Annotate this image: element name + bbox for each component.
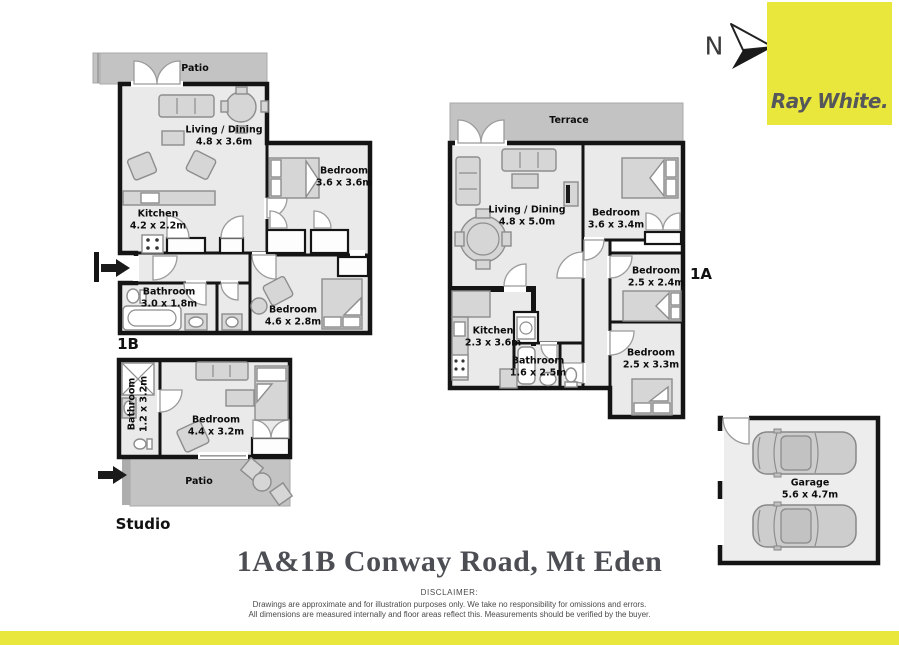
sofa [456, 157, 480, 205]
room-name: Patio [181, 63, 208, 74]
room-dims: 4.8 x 3.6m [185, 137, 262, 149]
kitchen-sink [141, 193, 159, 203]
room-name: Living / Dining [185, 125, 262, 137]
kitchen-counter [452, 291, 490, 317]
room-dims: 2.3 x 3.6m [465, 338, 521, 350]
closet-studio [252, 438, 289, 455]
room-name: Bathroom [141, 287, 197, 299]
closet-bedroom1b-1b [311, 230, 348, 253]
room-dims: 1.6 x 2.5m [510, 368, 566, 380]
unit-label-1a: 1A [690, 265, 712, 283]
room-dims: 2.5 x 2.4m [628, 278, 684, 290]
closet-bedroom1-1a [645, 232, 681, 244]
room-dims: 3.0 x 1.8m [141, 299, 197, 311]
room-name: Bedroom [316, 166, 372, 178]
patio-label-1b: Patio [181, 63, 208, 75]
bathroom-label-1a: Bathroom 1.6 x 2.5m [510, 356, 566, 381]
bathroom-label-1b: Bathroom 3.0 x 1.8m [141, 287, 197, 312]
car [753, 429, 856, 477]
unit-label-studio: Studio [116, 515, 171, 533]
patio-label-studio: Patio [185, 476, 212, 488]
ray-white-logo-text: Ray White. [767, 89, 892, 113]
disclaimer: DISCLAIMER: Drawings are approximate and… [0, 588, 899, 620]
room-dims: 2.5 x 3.3m [623, 360, 679, 372]
toilet [566, 368, 577, 382]
dining-table [226, 92, 256, 122]
living-label-1b: Living / Dining 4.8 x 3.6m [185, 125, 262, 150]
bathroom-label-studio: Bathroom 1.2 x 3.2m [127, 376, 152, 432]
sofa [159, 95, 214, 117]
room-name: Bathroom [510, 356, 566, 368]
closet-bedroom2-1b [338, 257, 368, 276]
floor-plan-page: Patio Living / Dining 4.8 x 3.6m Bedroom… [0, 0, 899, 645]
room-dims: 3.6 x 3.6m [316, 178, 372, 190]
room-dims: 3.6 x 3.4m [588, 220, 644, 232]
disclaimer-line1: Drawings are approximate and for illustr… [0, 600, 899, 610]
room-name: Bedroom [623, 348, 679, 360]
toilet [134, 439, 146, 449]
room-dims: 4.2 x 2.2m [130, 221, 186, 233]
disclaimer-heading: DISCLAIMER: [0, 588, 899, 598]
closet-bedroom1-1b [267, 230, 305, 253]
coffee-table [162, 131, 184, 145]
room-dims: 4.6 x 2.8m [265, 317, 321, 329]
bedroom1-label-1a: Bedroom 3.6 x 3.4m [588, 208, 644, 233]
room-name: Garage [782, 478, 838, 490]
kitchen-counter [123, 191, 215, 205]
room-name: Living / Dining [488, 205, 565, 217]
entry-arrow-1b [101, 259, 130, 277]
room-hall-1a [583, 240, 610, 388]
sofa [196, 362, 248, 380]
room-name: Bedroom [188, 415, 244, 427]
toilet [127, 289, 139, 303]
room-name: Patio [185, 476, 212, 487]
room-dims: 1.2 x 3.2m [139, 376, 151, 432]
kitchen-label-1b: Kitchen 4.2 x 2.2m [130, 209, 186, 234]
room-dims: 4.4 x 3.2m [188, 427, 244, 439]
north-label: N [705, 32, 724, 61]
bedroom3-label-1a: Bedroom 2.5 x 3.3m [623, 348, 679, 373]
room-name: Bedroom [265, 305, 321, 317]
brand-bottom-bar [0, 631, 899, 645]
room-name: Kitchen [465, 326, 521, 338]
patio-table [253, 473, 271, 491]
garage-label: Garage 5.6 x 4.7m [782, 478, 838, 503]
terrace-label-1a: Terrace [549, 115, 589, 127]
bedroom2-label-1a: Bedroom 2.5 x 2.4m [628, 266, 684, 291]
unit-1b-plan [93, 53, 370, 333]
stove [452, 355, 468, 377]
coffee-table [512, 174, 538, 188]
room-dims: 5.6 x 4.7m [782, 490, 838, 502]
unit-label-1b: 1B [117, 335, 139, 353]
car [753, 502, 856, 550]
sofa [502, 149, 556, 171]
bedroom1-label-1b: Bedroom 3.6 x 3.6m [316, 166, 372, 191]
room-name: Bedroom [588, 208, 644, 220]
room-name: Terrace [549, 115, 589, 126]
living-label-1a: Living / Dining 4.8 x 5.0m [488, 205, 565, 230]
room-dims: 4.8 x 5.0m [488, 217, 565, 229]
bedroom-label-studio: Bedroom 4.4 x 3.2m [188, 415, 244, 440]
disclaimer-line2: All dimensions are measured internally a… [0, 610, 899, 620]
bedroom2-label-1b: Bedroom 4.6 x 2.8m [265, 305, 321, 330]
room-name: Kitchen [130, 209, 186, 221]
kitchen-sink [454, 322, 465, 336]
page-title: 1A&1B Conway Road, Mt Eden [0, 545, 899, 579]
coffee-table [226, 390, 254, 406]
ray-white-logo: Ray White. [767, 2, 892, 125]
kitchen-label-1a: Kitchen 2.3 x 3.6m [465, 326, 521, 351]
room-name: Bathroom [127, 376, 139, 432]
stove [142, 235, 163, 253]
room-name: Bedroom [628, 266, 684, 278]
